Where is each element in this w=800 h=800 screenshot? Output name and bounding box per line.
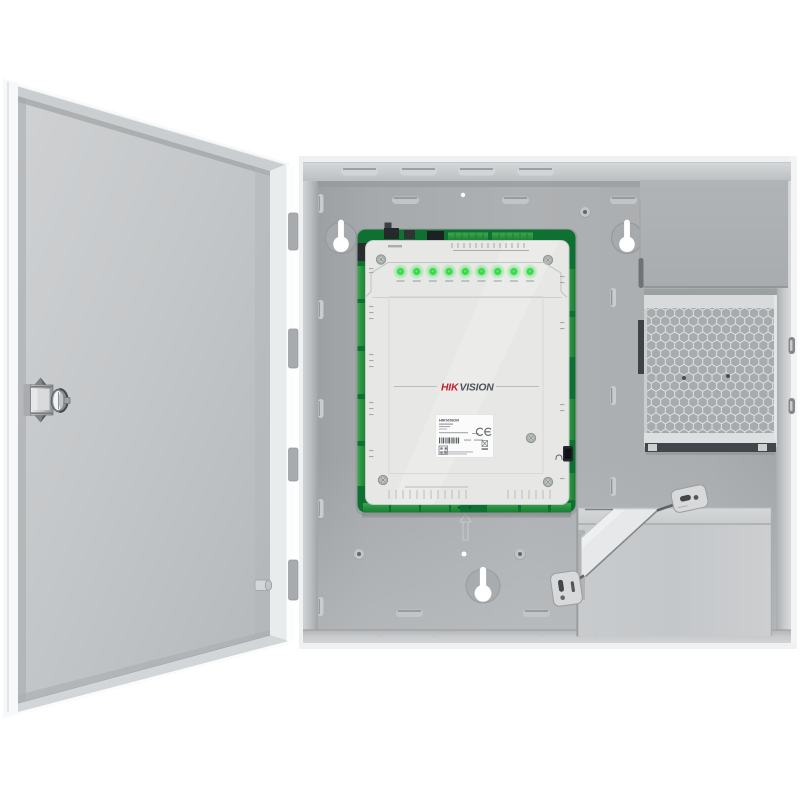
svg-text:HIK: HIK — [441, 383, 460, 394]
svg-text:VISION: VISION — [460, 383, 495, 394]
svg-text:HIKVISION: HIKVISION — [439, 418, 459, 423]
